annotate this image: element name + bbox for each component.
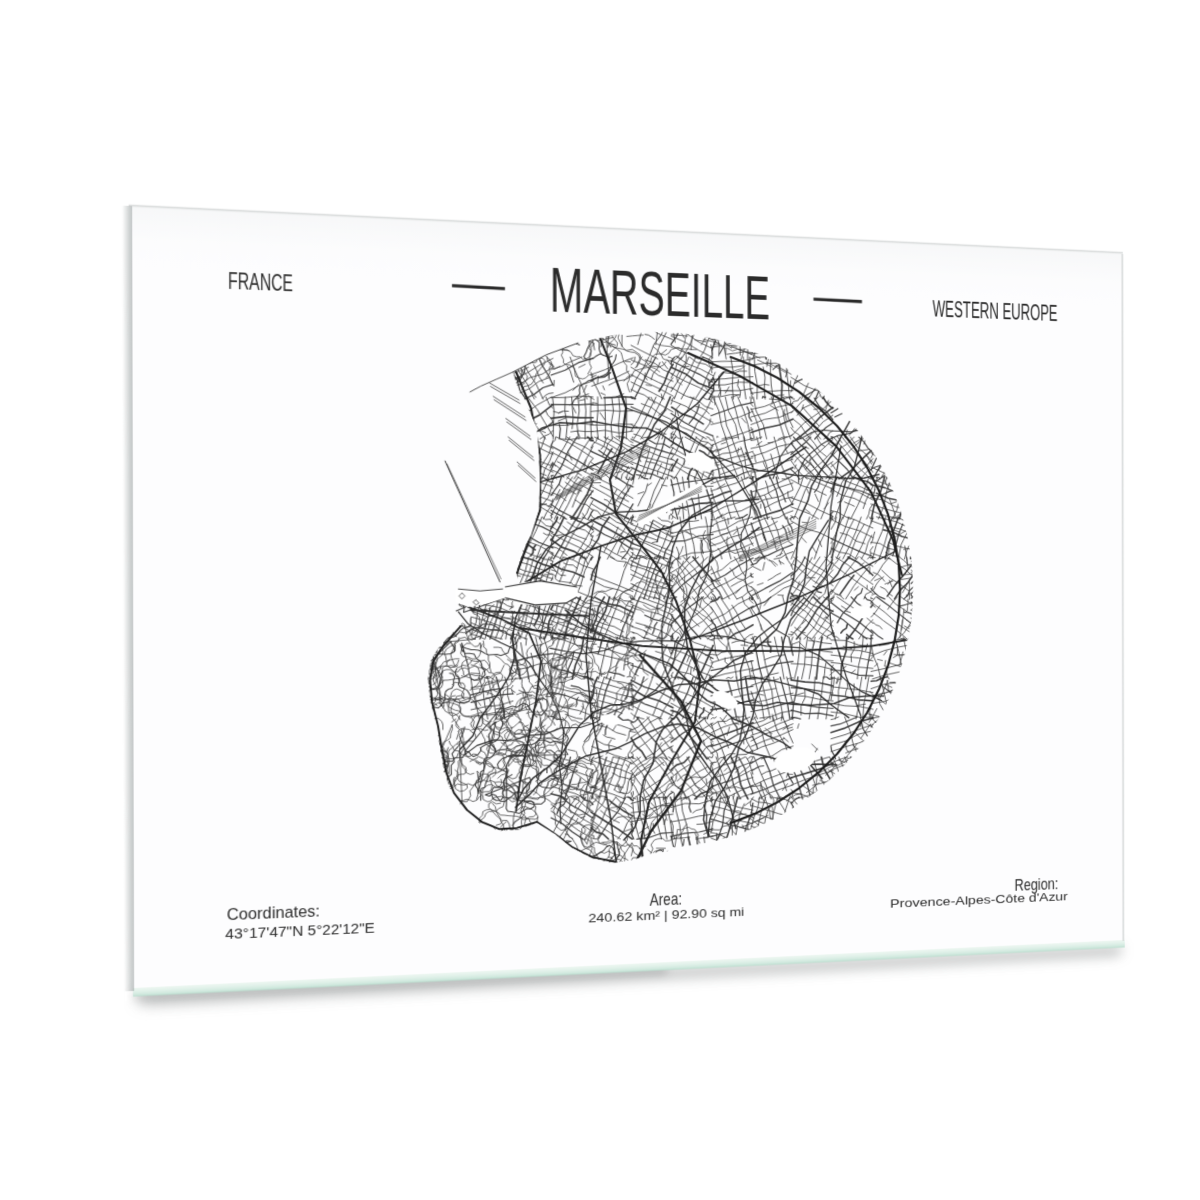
svg-text:Coordinates:: Coordinates: — [227, 903, 320, 924]
svg-text:240.62 km² | 92.90 sq mi: 240.62 km² | 92.90 sq mi — [588, 906, 744, 926]
svg-text:MARSEILLE: MARSEILLE — [550, 255, 770, 334]
svg-text:Area:: Area: — [650, 891, 682, 910]
svg-text:WESTERN EUROPE: WESTERN EUROPE — [932, 295, 1057, 325]
svg-text:Provence-Alpes-Côte d'Azur: Provence-Alpes-Côte d'Azur — [890, 891, 1068, 912]
svg-text:FRANCE: FRANCE — [228, 268, 293, 296]
